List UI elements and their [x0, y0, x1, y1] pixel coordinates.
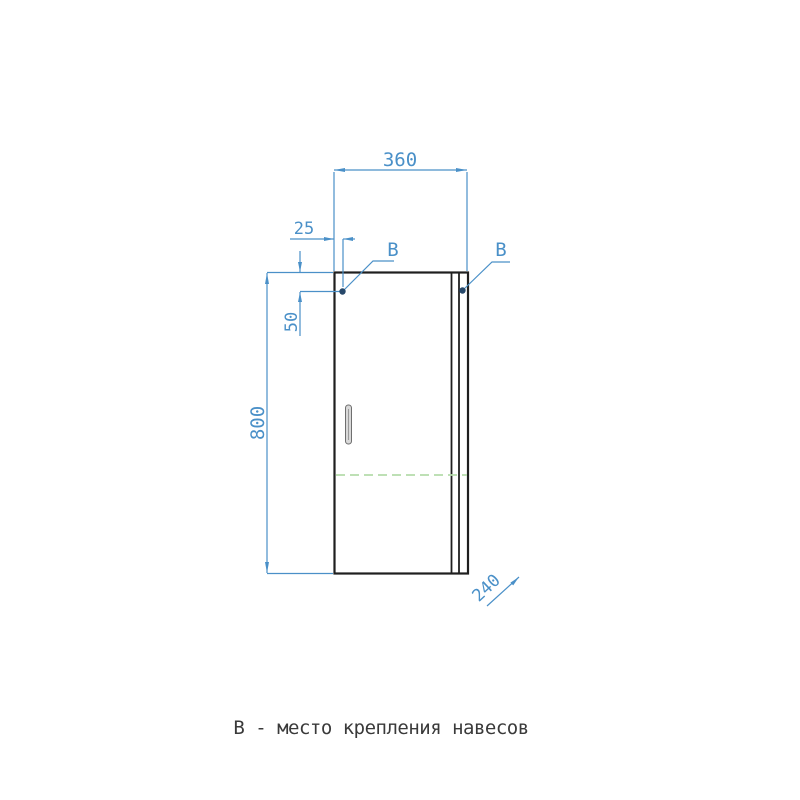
hinge-label-left: B — [387, 239, 398, 261]
hinge-markers: B B — [339, 239, 510, 295]
cabinet-body — [335, 273, 469, 574]
dim-hinge-drop: 50 — [282, 251, 340, 336]
dim-drop-arrow-top — [298, 262, 302, 272]
hinge-leader-left — [343, 261, 394, 291]
dim-height-label: 800 — [247, 406, 269, 440]
dim-width-label: 360 — [383, 149, 417, 171]
dim-height-arrow-bottom — [265, 562, 269, 573]
caption-text: В - место крепления навесов — [233, 717, 528, 739]
dim-height-arrow-top — [265, 273, 269, 284]
hinge-dot-left — [339, 288, 345, 294]
hinge-label-right: B — [495, 239, 506, 261]
dim-drop-label: 50 — [282, 312, 302, 332]
hinge-leader-right — [463, 262, 510, 290]
technical-drawing: 360 25 50 800 — [0, 0, 800, 800]
dim-inset-arrow-right — [343, 237, 353, 241]
dim-inset-label: 25 — [294, 219, 314, 239]
dim-width-arrow-left — [334, 168, 345, 172]
dim-inset-arrow-left — [324, 237, 334, 241]
cabinet-drawing-page: 360 25 50 800 — [0, 0, 800, 800]
cabinet-outline — [335, 273, 469, 574]
dim-depth-label: 240 — [469, 571, 505, 607]
dim-depth: 240 — [469, 571, 519, 607]
hinge-dot-right — [459, 287, 465, 293]
dim-drop-arrow-bottom — [298, 292, 302, 302]
dim-width: 360 — [334, 149, 467, 271]
dim-width-arrow-right — [456, 168, 467, 172]
